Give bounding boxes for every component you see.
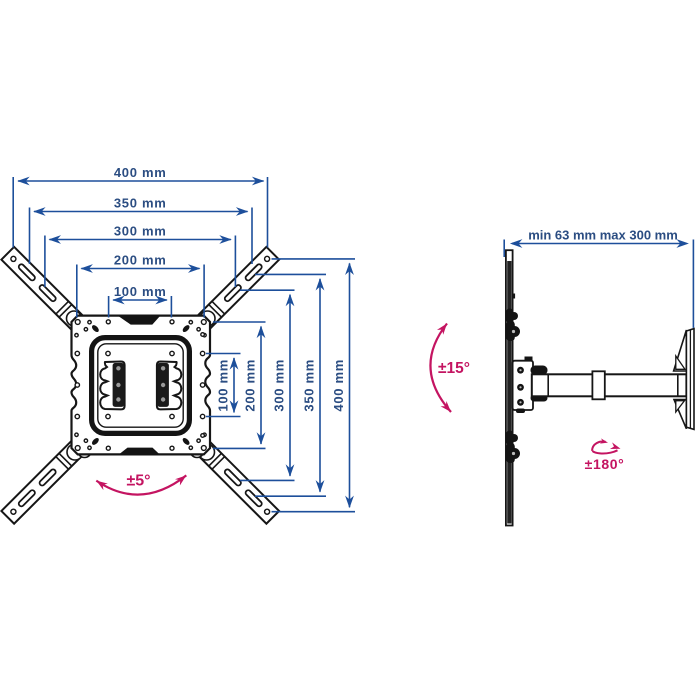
svg-text:±5°: ±5° [126,473,150,490]
svg-text:400 mm: 400 mm [331,359,346,412]
svg-text:300 mm: 300 mm [114,224,167,239]
svg-text:100 mm: 100 mm [216,359,231,412]
svg-text:300 mm: 300 mm [272,359,287,412]
svg-text:350 mm: 350 mm [114,196,167,211]
svg-text:200 mm: 200 mm [114,253,167,268]
svg-text:350 mm: 350 mm [302,359,317,412]
svg-text:±180°: ±180° [585,456,625,472]
svg-text:100 mm: 100 mm [114,284,167,299]
svg-text:200 mm: 200 mm [243,359,258,412]
svg-text:400 mm: 400 mm [114,165,167,180]
svg-text:min 63 mm max 300 mm: min 63 mm max 300 mm [528,227,678,242]
svg-text:±15°: ±15° [438,360,470,377]
